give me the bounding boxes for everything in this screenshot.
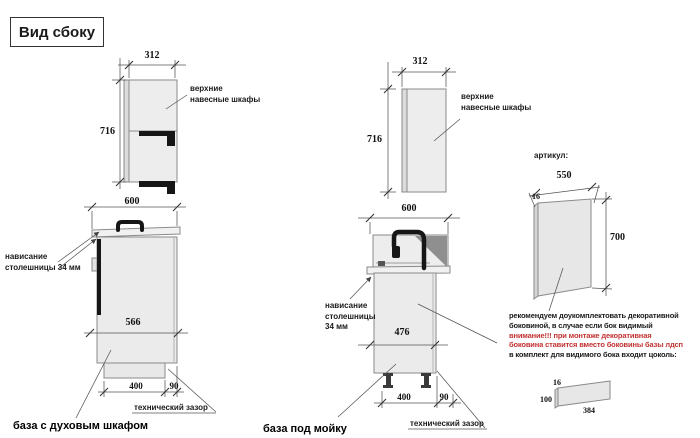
dim-left-plinth: 400 [116, 381, 156, 391]
adjustable-leg-icon [383, 373, 393, 388]
note-line: в комплект для видимого бока входит цоко… [509, 350, 700, 360]
dim-mid-wall-height: 716 [360, 134, 382, 145]
wall-cabinets-label-left: верхние навесные шкафы [190, 84, 262, 105]
note-warning-line: внимание!!! при монтаже декоративная [509, 331, 700, 341]
tech-gap-label-middle: технический зазор [410, 419, 484, 430]
oven-base-cabinet [92, 227, 180, 378]
tech-gap-label-left: технический зазор [134, 403, 208, 414]
note-line: рекомендуем доукомплектовать декоративно… [509, 311, 700, 321]
dim-panel-width: 550 [544, 170, 584, 181]
dim-left-wall-height: 716 [93, 126, 115, 137]
wall-cabinet-handle-icon [139, 181, 175, 194]
oven-door-strip [97, 239, 101, 315]
sink-base-name-label: база под мойку [263, 423, 347, 435]
decorative-side-panel [534, 199, 591, 299]
plinth [104, 363, 165, 378]
dim-panel-height: 700 [610, 232, 640, 243]
dim-left-wall-width: 312 [132, 50, 172, 61]
cabinet-body [374, 273, 436, 373]
control-panel [92, 258, 97, 271]
dim-plinth-thickness: 16 [549, 378, 565, 387]
countertop-overhang-label-middle: нависание столешницы 34 мм [325, 301, 377, 333]
oven-base-name-label: база с духовым шкафом [13, 420, 148, 432]
dim-left-gap: 90 [162, 381, 186, 391]
wall-cabinets-label-middle: верхние навесные шкафы [461, 92, 533, 113]
countertop-overhang-label-left: нависание столешницы 34 мм [5, 252, 90, 273]
dim-left-body-depth: 566 [113, 317, 153, 328]
dim-panel-thickness: 16 [528, 192, 544, 201]
sink-base-cabinet [367, 235, 450, 373]
dim-mid-plinth: 400 [384, 392, 424, 402]
cabinet-body [97, 237, 177, 363]
countertop [92, 227, 180, 237]
sink-drain [378, 261, 385, 266]
page-title: Вид сбоку [10, 17, 104, 47]
drawing-canvas [0, 0, 700, 438]
note-line: боковиной, в случае если бок видимый [509, 321, 700, 331]
dim-plinth-height: 100 [528, 395, 552, 404]
note-warning-line: боковина ставится вместо боковины базы л… [509, 340, 700, 350]
dim-mid-body-depth: 476 [382, 327, 422, 338]
dim-mid-gap: 90 [432, 392, 456, 402]
article-label: артикул: [534, 151, 568, 162]
recommendation-note: рекомендуем доукомплектовать декоративно… [509, 311, 700, 360]
dim-mid-top-width: 600 [389, 203, 429, 214]
middle-wall-cabinet [402, 89, 446, 192]
dim-plinth-length: 384 [573, 406, 605, 415]
side-view-drawing: Вид сбоку 312 716 600 566 400 90 312 716… [0, 0, 700, 438]
dim-left-top-width: 600 [112, 196, 152, 207]
adjustable-leg-icon [421, 373, 431, 388]
dim-mid-wall-width: 312 [400, 56, 440, 67]
